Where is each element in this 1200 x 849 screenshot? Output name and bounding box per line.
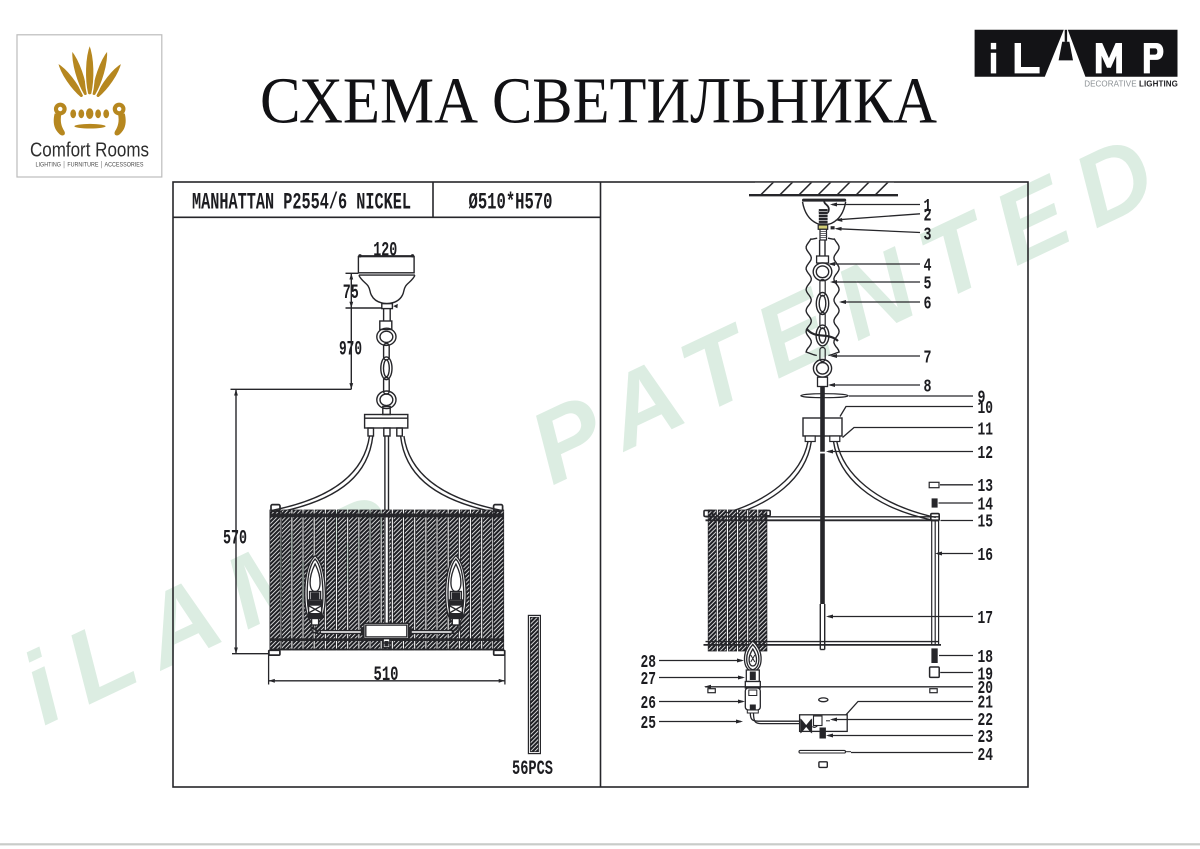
svg-text:16: 16 bbox=[978, 546, 994, 566]
svg-text:DECORATIVE LIGHTING: DECORATIVE LIGHTING bbox=[1084, 80, 1178, 89]
svg-text:8: 8 bbox=[924, 377, 932, 397]
svg-text:24: 24 bbox=[978, 746, 994, 766]
svg-text:23: 23 bbox=[978, 728, 994, 748]
svg-text:120: 120 bbox=[373, 239, 397, 262]
svg-text:56PCS: 56PCS bbox=[512, 758, 553, 781]
svg-text:4: 4 bbox=[924, 256, 932, 276]
svg-text:LIGHTING │ FURNITURE │ ACCESSO: LIGHTING │ FURNITURE │ ACCESSORIES bbox=[36, 161, 144, 169]
svg-text:15: 15 bbox=[978, 512, 994, 532]
svg-text:17: 17 bbox=[978, 609, 994, 629]
svg-text:7: 7 bbox=[924, 348, 932, 368]
svg-text:26: 26 bbox=[641, 694, 657, 714]
svg-text:28: 28 bbox=[641, 653, 657, 673]
svg-text:Comfort Rooms: Comfort Rooms bbox=[30, 139, 149, 162]
svg-text:10: 10 bbox=[978, 399, 994, 419]
svg-text:5: 5 bbox=[924, 274, 932, 294]
svg-text:27: 27 bbox=[641, 670, 657, 690]
svg-text:Ø510*H570: Ø510*H570 bbox=[469, 190, 553, 216]
svg-text:510: 510 bbox=[374, 664, 399, 687]
svg-text:11: 11 bbox=[978, 420, 994, 440]
svg-text:3: 3 bbox=[924, 225, 932, 245]
svg-text:2: 2 bbox=[924, 206, 932, 226]
svg-text:СВЕТИЛЬНИКА: СВЕТИЛЬНИКА bbox=[492, 65, 937, 138]
svg-text:970: 970 bbox=[339, 338, 362, 361]
svg-text:6: 6 bbox=[924, 294, 932, 314]
svg-text:СХЕМА: СХЕМА bbox=[260, 65, 478, 138]
svg-text:MANHATTAN P2554/6 NICKEL: MANHATTAN P2554/6 NICKEL bbox=[192, 190, 411, 216]
svg-text:13: 13 bbox=[978, 477, 994, 497]
svg-text:12: 12 bbox=[978, 444, 994, 464]
svg-text:570: 570 bbox=[223, 527, 247, 550]
svg-text:25: 25 bbox=[641, 714, 657, 734]
